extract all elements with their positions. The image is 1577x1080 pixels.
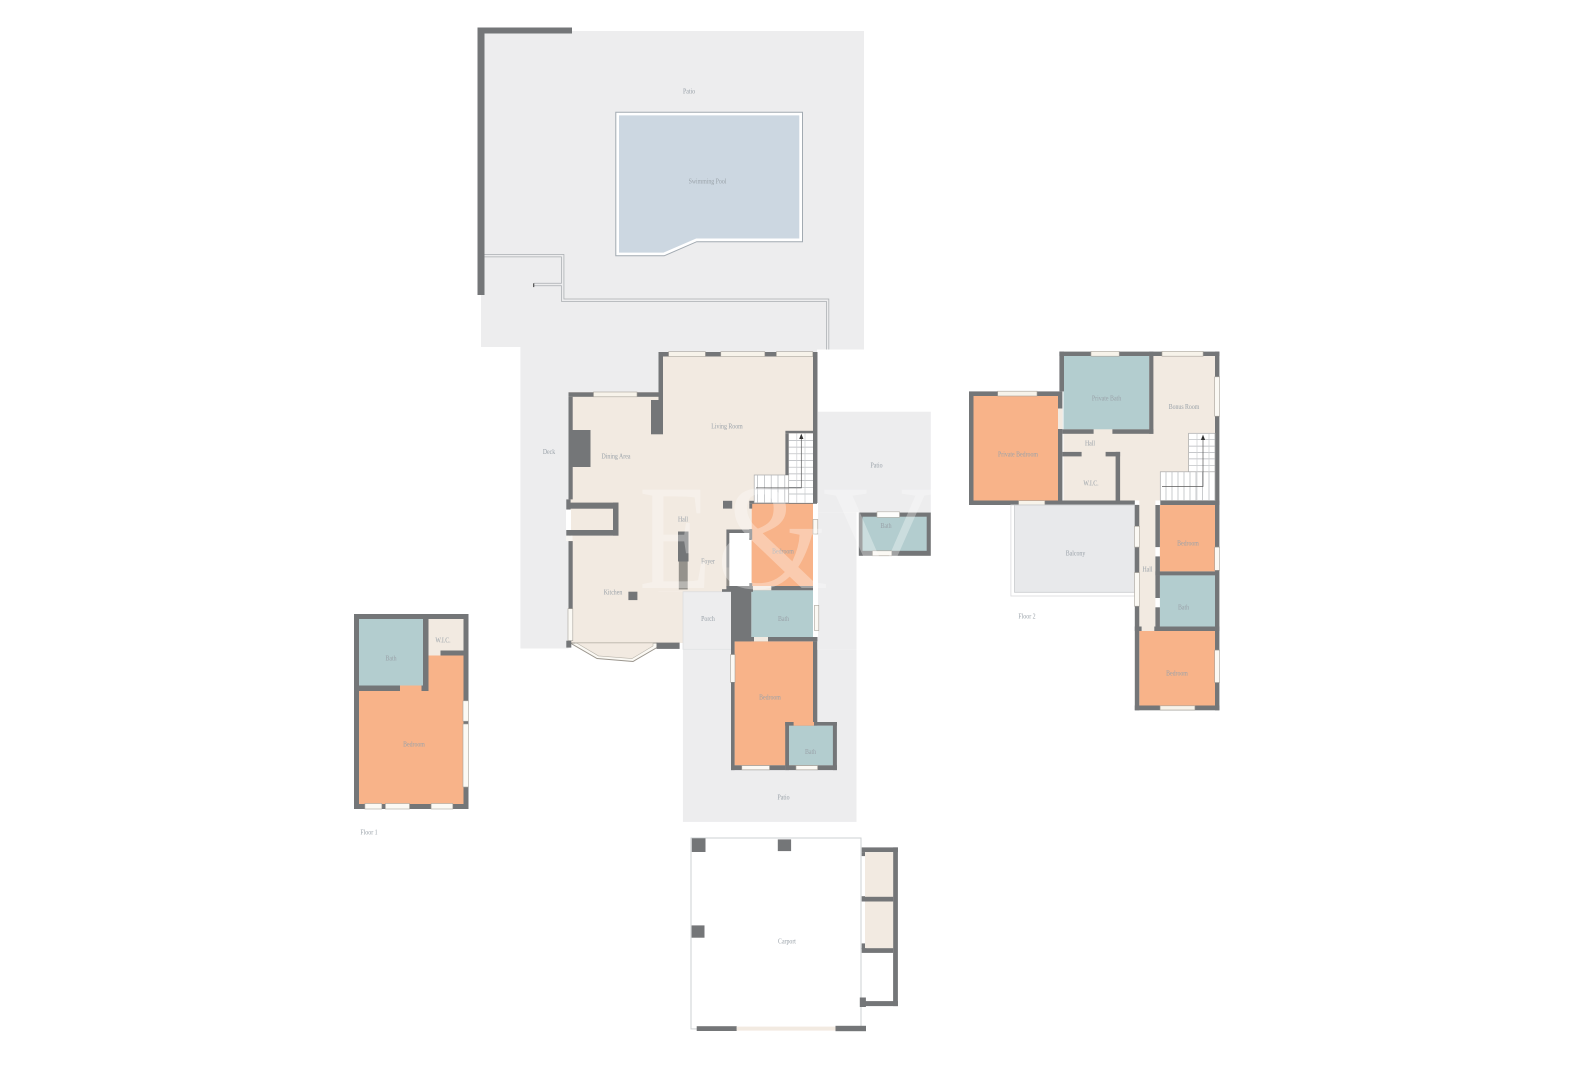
svg-text:Private Bedroom: Private Bedroom [998,451,1038,459]
svg-text:&: & [717,455,829,621]
svg-text:W.I.C.: W.I.C. [1083,480,1098,488]
svg-text:Bath: Bath [385,655,396,663]
svg-text:Hall: Hall [1085,440,1095,448]
svg-text:Floor 1: Floor 1 [360,829,378,837]
svg-text:Bath: Bath [1178,604,1189,612]
svg-text:Bedroom: Bedroom [759,694,781,702]
svg-text:Bonus Room: Bonus Room [1169,403,1200,411]
svg-text:Carport: Carport [778,938,796,946]
svg-text:Swimming Pool: Swimming Pool [689,178,727,186]
svg-text:Bedroom: Bedroom [403,741,425,749]
svg-text:W.I.C.: W.I.C. [435,637,450,645]
svg-text:V: V [823,455,938,621]
svg-text:Deck: Deck [543,448,556,456]
svg-text:Living Room: Living Room [711,423,743,431]
svg-text:Bedroom: Bedroom [1177,540,1199,548]
svg-text:Floor 2: Floor 2 [1018,613,1036,621]
svg-text:Patio: Patio [683,88,695,96]
svg-text:Private Bath: Private Bath [1092,395,1122,403]
svg-text:Bath: Bath [805,748,816,756]
svg-text:Balcony: Balcony [1066,550,1086,558]
svg-text:Kitchen: Kitchen [604,589,623,597]
svg-text:Patio: Patio [777,794,789,802]
svg-text:Dining Area: Dining Area [602,453,632,461]
svg-text:Hall: Hall [1142,566,1152,574]
svg-text:E: E [639,455,711,621]
svg-text:Bedroom: Bedroom [1166,670,1188,678]
